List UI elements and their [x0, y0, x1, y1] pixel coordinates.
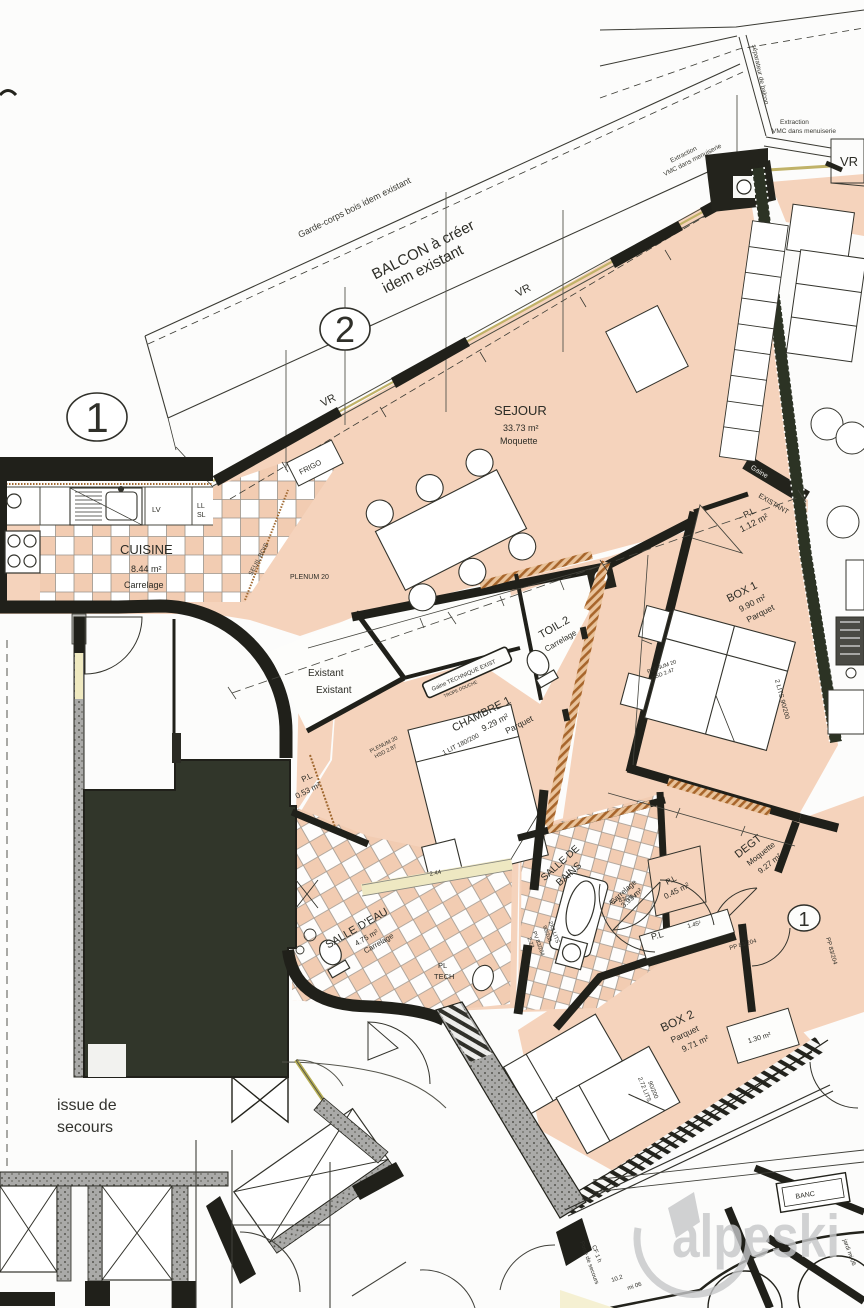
- svg-text:Carrelage: Carrelage: [124, 580, 164, 590]
- svg-text:PLENUM 20: PLENUM 20: [290, 574, 329, 581]
- svg-text:VR: VR: [840, 154, 858, 169]
- svg-text:TECH: TECH: [434, 972, 454, 981]
- svg-text:LV: LV: [152, 505, 161, 514]
- svg-text:issue de: issue de: [57, 1097, 117, 1114]
- svg-text:CUISINE: CUISINE: [120, 542, 173, 557]
- svg-text:Existant: Existant: [308, 668, 344, 679]
- svg-text:secours: secours: [57, 1119, 113, 1136]
- svg-text:PL: PL: [438, 961, 447, 970]
- svg-text:SL: SL: [197, 512, 206, 519]
- svg-text:LL: LL: [197, 503, 205, 510]
- svg-text:Existant: Existant: [316, 685, 352, 696]
- svg-text:1: 1: [85, 394, 108, 441]
- svg-text:Moquette: Moquette: [500, 436, 538, 446]
- svg-text:SEJOUR: SEJOUR: [494, 403, 547, 418]
- svg-text:2: 2: [335, 309, 355, 350]
- svg-text:alpeski: alpeski: [672, 1203, 840, 1270]
- svg-text:8.44 m²: 8.44 m²: [131, 564, 162, 574]
- svg-text:1: 1: [798, 909, 809, 931]
- svg-text:VMC dans menuiserie: VMC dans menuiserie: [772, 128, 836, 135]
- svg-text:33.73 m²: 33.73 m²: [503, 423, 539, 433]
- svg-text:Extraction: Extraction: [780, 119, 809, 126]
